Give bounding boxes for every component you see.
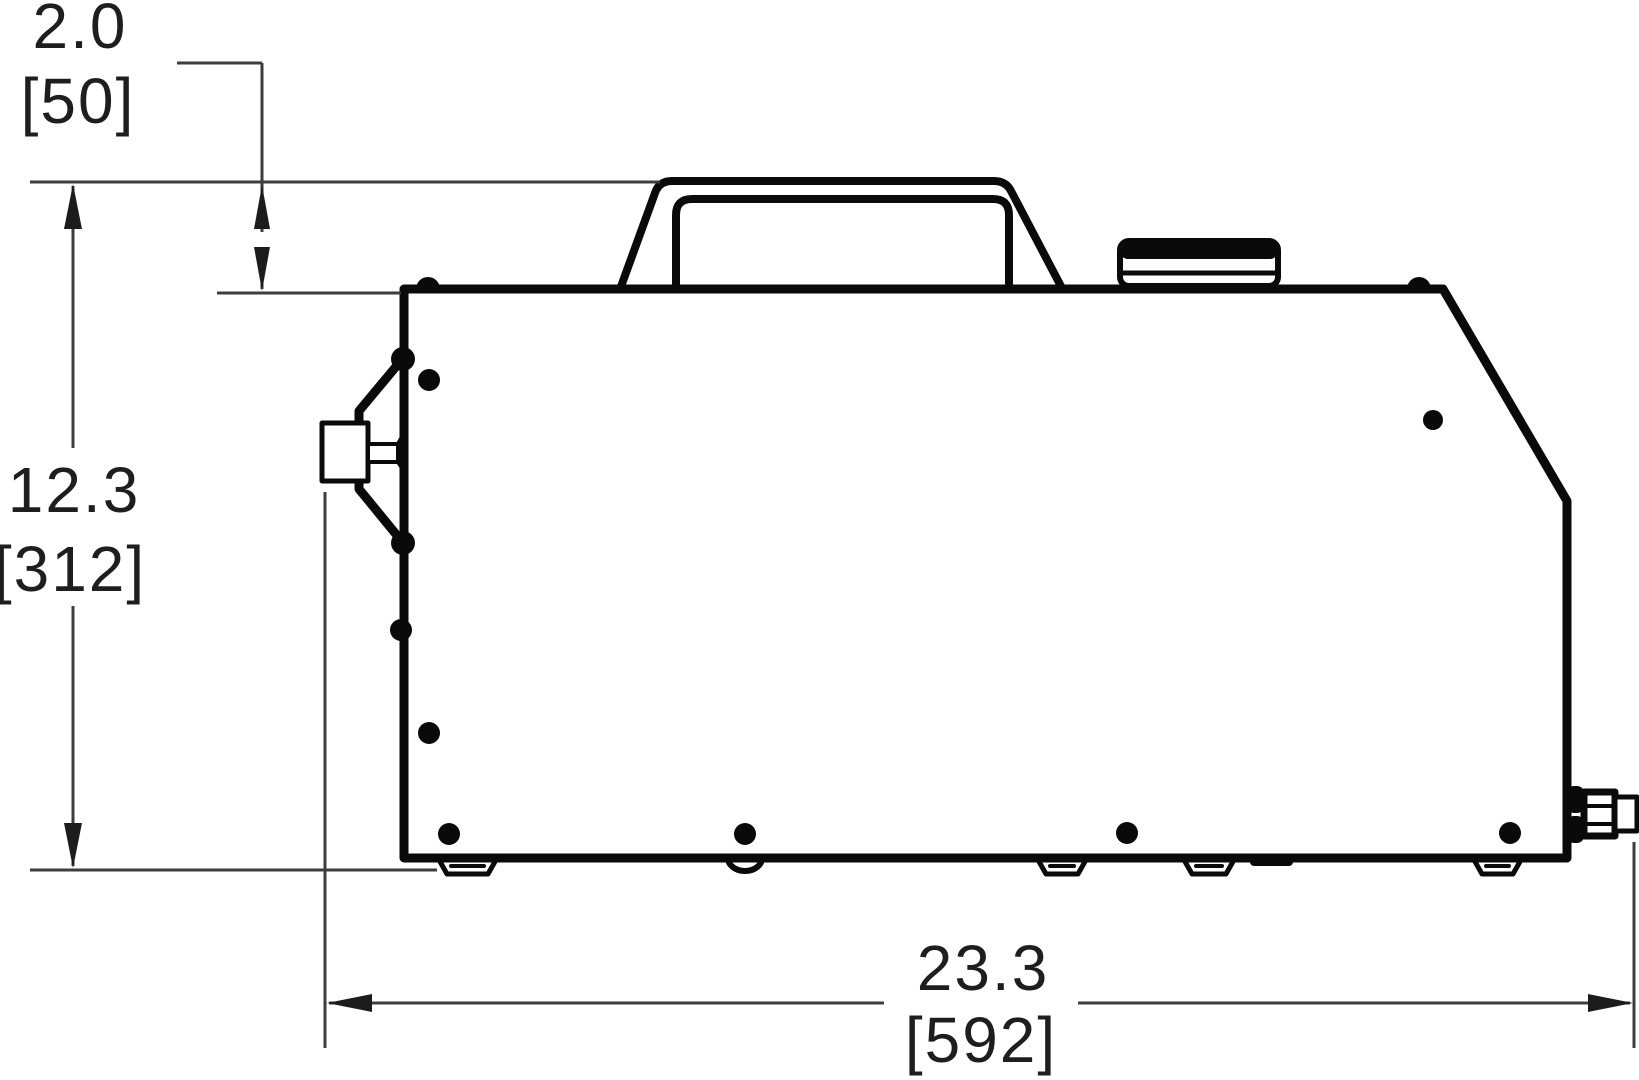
overall-width-mm-label: [592]	[905, 1004, 1057, 1076]
body-outline	[404, 289, 1567, 858]
screw-dot	[418, 722, 440, 744]
dimension-handle-height: 2.0 [50]	[21, 0, 270, 291]
screw-dot	[390, 619, 412, 641]
overall-height-mm-label: [312]	[0, 533, 146, 605]
torch-connector-plug	[322, 423, 368, 481]
carry-handle	[619, 181, 1064, 292]
handle-height-inches-label: 2.0	[33, 0, 128, 62]
screw-dot	[418, 369, 440, 391]
vent-louver-top-band	[1120, 241, 1278, 259]
screw-dot	[391, 347, 415, 371]
dimension-arrow-down	[64, 823, 82, 868]
dimension-arrow-right	[1588, 994, 1633, 1012]
carry-handle-opening	[676, 199, 1009, 292]
dimension-arrow-up	[64, 184, 82, 229]
screw-head-top-right	[1407, 277, 1431, 289]
dimension-arrow-up	[254, 185, 270, 229]
dimension-arrow-left	[327, 994, 372, 1012]
vent-louver	[1120, 241, 1278, 286]
overall-width-inches-label: 23.3	[917, 932, 1050, 1004]
overall-height-inches-label: 12.3	[8, 454, 141, 526]
dimension-arrow-down	[254, 247, 270, 291]
screw-dot	[391, 531, 415, 555]
screw-dot	[1499, 822, 1521, 844]
gas-fitting-hex-nut	[1584, 792, 1615, 836]
screw-head-top-left	[416, 277, 440, 289]
screw-dot	[438, 823, 460, 845]
screw-dot	[1116, 822, 1138, 844]
engineering-drawing-page: 12.3 [312] 2.0 [50] 23.3 [592]	[0, 0, 1639, 1080]
torch-connector-neck	[368, 444, 398, 462]
gas-fitting	[1567, 786, 1637, 843]
handle-height-mm-label: [50]	[21, 65, 136, 137]
engineering-drawing-canvas: 12.3 [312] 2.0 [50] 23.3 [592]	[0, 0, 1639, 1080]
screw-dot	[734, 823, 756, 845]
gas-fitting-outlet	[1615, 797, 1637, 831]
dimension-overall-width: 23.3 [592]	[327, 932, 1633, 1076]
dimension-overall-height: 12.3 [312]	[0, 184, 146, 868]
screw-dot	[1423, 410, 1443, 430]
